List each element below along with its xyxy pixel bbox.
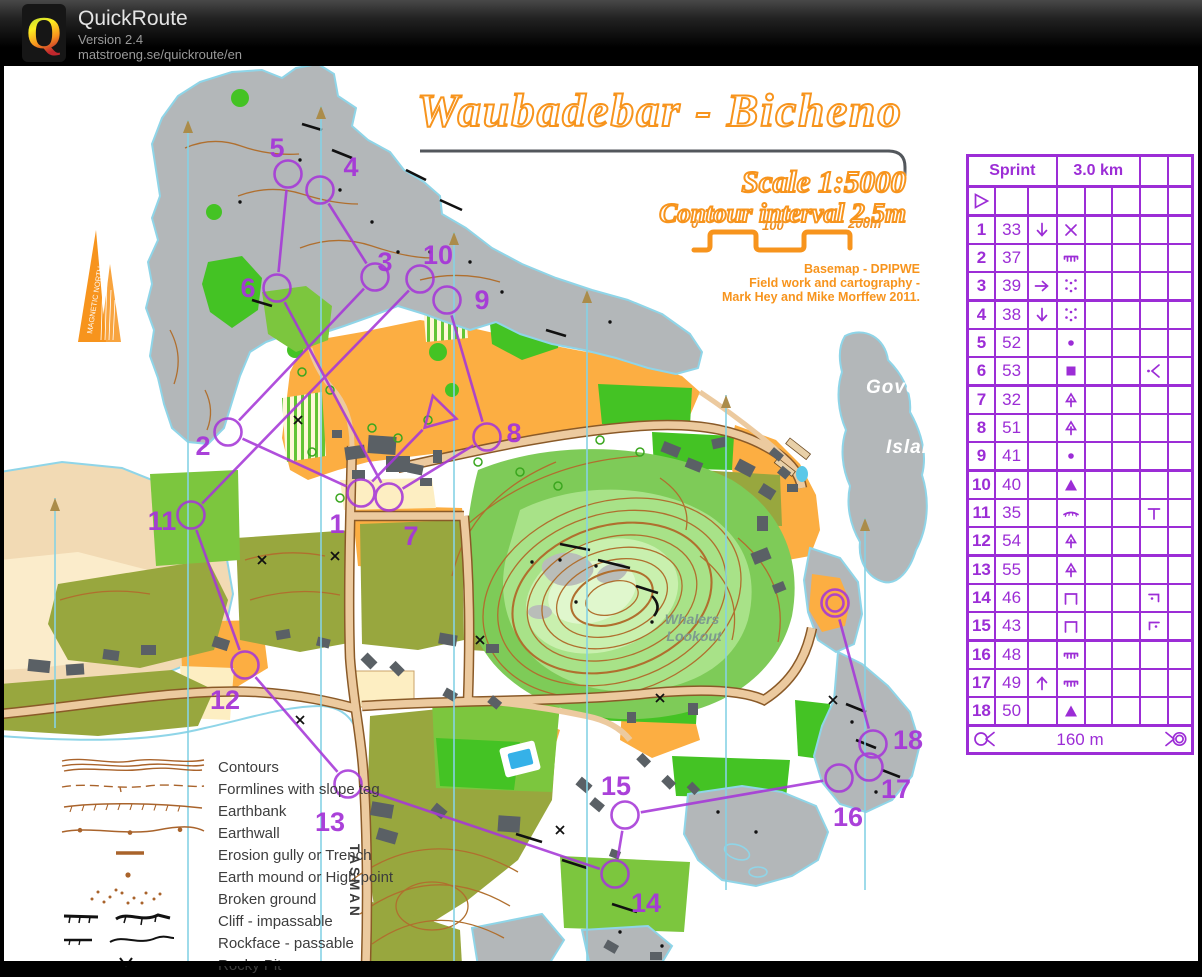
earth-mound-icon [58, 866, 208, 884]
lookout-label-line1: Whalers [665, 611, 720, 627]
card-row-8: 851 [968, 414, 1193, 442]
wall-icon [1061, 588, 1081, 608]
legend-item-contours: Contours [58, 756, 393, 778]
card-course-name: Sprint [968, 156, 1057, 187]
card-row-15: 1543 [968, 612, 1193, 641]
card-row-13: 1355 [968, 556, 1193, 585]
control-number-14: 14 [631, 888, 661, 918]
card-row-11: 1135 [968, 499, 1193, 527]
cross-icon [1061, 220, 1081, 240]
control-number-3: 3 [377, 247, 392, 277]
tree-icon [1061, 560, 1081, 580]
earthbank-icon [58, 800, 208, 818]
rockface-passable-icon [58, 932, 208, 950]
credit-line-1: Basemap - DPIPWE [804, 262, 920, 276]
window-edge-right [1198, 66, 1202, 966]
quickroute-logo-icon: Q [22, 4, 66, 62]
legend-label: Earthwall [218, 825, 280, 842]
lookout-label-line2: Lookout [666, 628, 723, 644]
control-number-4: 4 [343, 152, 358, 182]
card-row-12: 1254 [968, 527, 1193, 556]
control-number-9: 9 [474, 285, 489, 315]
legend-item-broken-ground: Broken ground [58, 888, 393, 910]
magnetic-north-symbol: MAGNETIC NORTH [78, 230, 121, 342]
map-scale-text: Scale 1:5000 [742, 164, 906, 200]
control-number-6: 6 [240, 273, 255, 303]
legend-item-earthbank: Earthbank [58, 800, 393, 822]
window-edge-bottom [0, 961, 1202, 966]
finish-distance: 160 m [1056, 730, 1103, 749]
tree-icon [1061, 390, 1081, 410]
legend-item-erosion-gully: Erosion gully or Trench [58, 844, 393, 866]
control-number-2: 2 [195, 431, 210, 461]
earthwall-icon [58, 822, 208, 840]
finish-right-icon [1163, 729, 1187, 749]
island-label-line2: Island [886, 437, 947, 458]
card-row-4: 438 [968, 301, 1193, 330]
card-row-16: 1648 [968, 641, 1193, 670]
map-contour-text: Contour interval 2.5m [659, 198, 906, 229]
legend-item-earthwall: Earthwall [58, 822, 393, 844]
triangle-icon [1061, 701, 1081, 721]
app-version: Version 2.4 [78, 32, 143, 47]
earthbank-icon [1061, 673, 1081, 693]
card-course-length: 3.0 km [1057, 156, 1140, 187]
map-legend: ContoursFormlines with slope tagEarthban… [58, 756, 393, 976]
control-circle-15 [612, 802, 639, 829]
legend-item-cliff-impassable: Cliff - impassable [58, 910, 393, 932]
contours-icon [58, 756, 208, 774]
control-number-17: 17 [881, 774, 911, 804]
legend-label: Earthbank [218, 803, 286, 820]
control-number-10: 10 [423, 240, 453, 270]
dot-icon [1061, 446, 1081, 466]
card-start-row [968, 187, 1193, 216]
card-finish-row: 160 m [968, 726, 1193, 754]
tree-icon [1061, 418, 1081, 438]
legend-label: Broken ground [218, 891, 316, 908]
card-row-9: 941 [968, 442, 1193, 471]
card-row-7: 732 [968, 386, 1193, 415]
broken-ground-icon [58, 888, 208, 906]
card-row-6: 653 [968, 357, 1193, 386]
legend-label: Formlines with slope tag [218, 781, 380, 798]
control-number-7: 7 [403, 521, 418, 551]
control-number-11: 11 [148, 506, 177, 536]
triangle-icon [1061, 475, 1081, 495]
finish-icon [1163, 729, 1187, 754]
start-icon [971, 191, 991, 211]
formlines-icon [58, 778, 208, 796]
control-number-8: 8 [506, 418, 521, 448]
card-row-17: 1749 [968, 669, 1193, 697]
earthbank-curved-icon [1061, 503, 1081, 523]
corner-right-icon [1144, 588, 1164, 608]
earthbank-icon [1061, 645, 1081, 665]
app-website: matstroeng.se/quickroute/en [78, 47, 242, 62]
legend-item-formlines: Formlines with slope tag [58, 778, 393, 800]
arrow-right-icon [1032, 276, 1052, 296]
erosion-gully-icon [58, 844, 208, 862]
control-number-1: 1 [329, 509, 344, 539]
finish-left-icon [973, 729, 997, 749]
card-row-2: 237 [968, 244, 1193, 272]
app-header: Q QuickRoute Version 2.4 matstroeng.se/q… [0, 0, 1202, 66]
control-number-16: 16 [833, 802, 863, 832]
cliff-impassable-icon [58, 910, 208, 928]
credit-line-2: Field work and cartography - [749, 276, 920, 290]
island-label-line1: Governor [866, 377, 960, 398]
credit-line-3: Mark Hey and Mike Morffew 2011. [722, 290, 920, 304]
legend-label: Cliff - impassable [218, 913, 333, 930]
control-description-card: Sprint3.0 km1332373394385526537328519411… [966, 154, 1194, 755]
card-header-row: Sprint3.0 km [968, 156, 1193, 187]
window-edge-left [0, 66, 4, 966]
legend-label: Earth mound or High point [218, 869, 393, 886]
broken-ground-icon [1061, 305, 1081, 325]
card-row-1: 133 [968, 216, 1193, 245]
broken-ground-icon [1061, 276, 1081, 296]
square-icon [1061, 361, 1081, 381]
card-row-18: 1850 [968, 697, 1193, 726]
finish-route-start-icon [973, 729, 997, 754]
svg-text:Q: Q [26, 7, 62, 58]
control-number-18: 18 [893, 725, 923, 755]
control-number-15: 15 [601, 771, 631, 801]
legend-item-rockface-passable: Rockface - passable [58, 932, 393, 954]
tee-icon [1144, 503, 1164, 523]
arrow-up-icon [1032, 673, 1052, 693]
earthbank-icon [1061, 248, 1081, 268]
card-row-5: 552 [968, 329, 1193, 357]
corner-left-icon [1144, 616, 1164, 636]
angle-dot-icon [1144, 361, 1164, 381]
map-credits: Basemap - DPIPWE Field work and cartogra… [722, 262, 920, 304]
arrow-down-icon [1032, 220, 1052, 240]
dot-icon [1061, 333, 1081, 353]
card-row-14: 1446 [968, 584, 1193, 612]
legend-label: Rockface - passable [218, 935, 354, 952]
control-number-12: 12 [210, 685, 240, 715]
tree-icon [1061, 531, 1081, 551]
legend-label: Contours [218, 759, 279, 776]
legend-item-earth-mound: Earth mound or High point [58, 866, 393, 888]
map-title: Waubadebar - Bicheno [390, 84, 930, 138]
card-row-3: 339 [968, 272, 1193, 301]
control-description-table: Sprint3.0 km1332373394385526537328519411… [966, 154, 1194, 755]
arrow-down-icon [1032, 305, 1052, 325]
wall-icon [1061, 616, 1081, 636]
app-title: QuickRoute [78, 7, 188, 31]
control-number-5: 5 [269, 133, 284, 163]
legend-label: Erosion gully or Trench [218, 847, 371, 864]
card-row-10: 1040 [968, 471, 1193, 500]
